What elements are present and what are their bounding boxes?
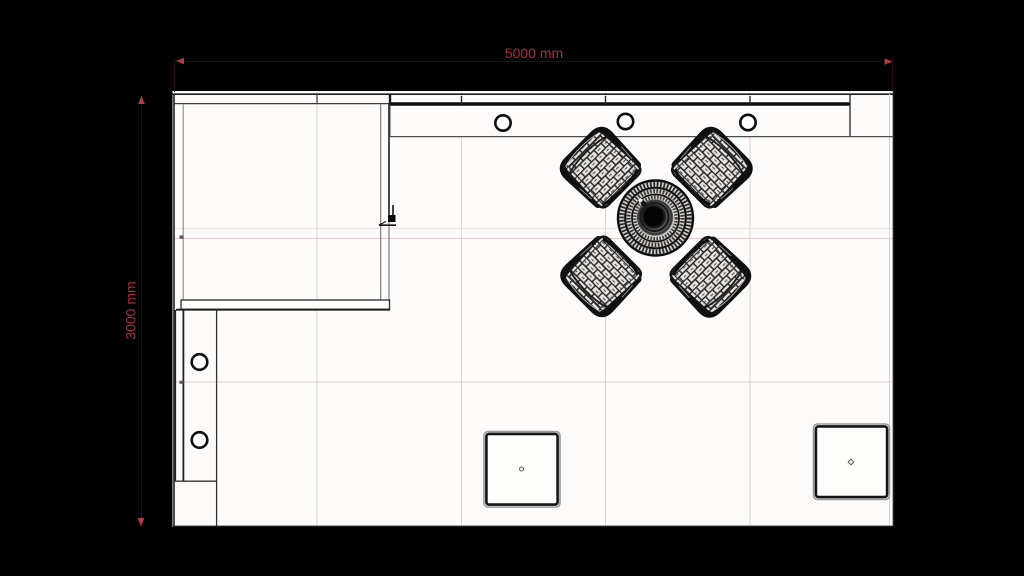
svg-text:3000 mm: 3000 mm bbox=[123, 281, 139, 339]
svg-text:5000 mm: 5000 mm bbox=[505, 45, 563, 61]
